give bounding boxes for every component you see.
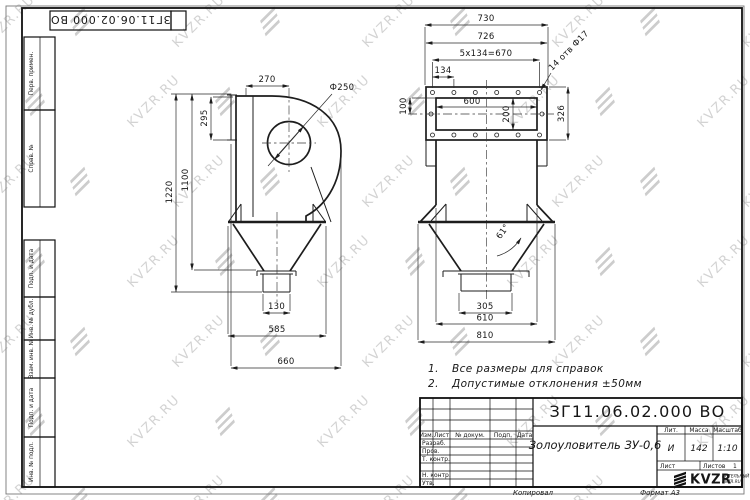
mass-header: Масса xyxy=(689,427,708,434)
row-razrab: Разраб. xyxy=(422,440,446,447)
dim-200: 200 xyxy=(502,105,512,122)
dim-holes-note: 14 отв Ф17 xyxy=(547,29,591,73)
side-strip: Перв. примен. Справ. № Подп. и дата Инв.… xyxy=(24,37,55,487)
kvzr-logo: KVZR КОТЕЛЬНЫЙ ЗАВОД KVZR.RU xyxy=(674,472,750,489)
left-view-cyclone-side: 270 Ф250 295 1100 1220 130 585 660 xyxy=(165,75,354,368)
dim-730: 730 xyxy=(477,14,494,24)
corner-doc-number: ЗГ11.06.02.000 ВО xyxy=(50,13,171,26)
strip-label: Справ. № xyxy=(29,144,35,172)
strip-label: Подп. и дата xyxy=(29,248,35,288)
lit-header: Лит. xyxy=(664,427,678,434)
dim-270: 270 xyxy=(258,75,275,85)
col-list: Лист xyxy=(434,432,450,439)
row-prov: Пров. xyxy=(422,448,440,455)
strip-label: Перв. примен. xyxy=(29,52,35,96)
title-block: Изм. Лист № докум. Подп. Дата Разраб. Пр… xyxy=(419,398,750,497)
dim-600: 600 xyxy=(463,97,480,107)
row-nkontr: Н. контр. xyxy=(422,472,451,479)
dim-610: 610 xyxy=(476,314,493,324)
footer-format: Формат А3 xyxy=(640,489,680,497)
dim-326: 326 xyxy=(557,105,567,122)
kvzr-logo-icon xyxy=(674,472,686,489)
dim-305: 305 xyxy=(476,302,493,312)
note-text: Допустимые отклонения ±50мм xyxy=(451,378,642,390)
dim-810: 810 xyxy=(476,331,493,341)
dim-1220: 1220 xyxy=(165,181,175,204)
dim-726: 726 xyxy=(477,32,494,42)
dim-295: 295 xyxy=(200,109,210,126)
right-view-cyclone-front: 730 726 5x134=670 134 14 отв Ф17 100 600… xyxy=(399,14,591,342)
scale-header: Масштаб xyxy=(713,427,742,434)
note-number: 2. xyxy=(428,378,439,390)
note-number: 1. xyxy=(428,363,439,375)
logo-tagline: КОТЕЛЬНЫЙ ЗАВОД xyxy=(722,474,750,479)
drawing-sheet: KVZR.RUKVZR.RUKVZR.RUKVZR.RUKVZR.RUKVZR.… xyxy=(0,0,750,500)
dim-130: 130 xyxy=(268,302,285,312)
sheets-label: Листов xyxy=(703,463,726,470)
note-text: Все размеры для справок xyxy=(452,363,604,375)
col-doc: № докум. xyxy=(455,432,485,439)
product-name: Золоуловитель ЗУ-0,6 xyxy=(529,438,662,452)
sheets-value: 1 xyxy=(733,463,737,470)
dim-100: 100 xyxy=(399,97,409,114)
row-tkontr: Т. контр. xyxy=(421,456,450,463)
corner-stamp: ЗГ11.06.02.000 ВО xyxy=(50,11,186,30)
dim-f250: Ф250 xyxy=(330,83,355,93)
mass-value: 142 xyxy=(690,444,707,454)
dim-1100: 1100 xyxy=(181,169,191,192)
sheet-label: Лист xyxy=(660,463,676,470)
row-utv: Утв. xyxy=(422,480,435,487)
col-izm: Изм. xyxy=(419,432,433,439)
scale-value: 1:10 xyxy=(717,444,737,454)
strip-label: Взам. инв. № xyxy=(29,339,35,378)
dim-660: 660 xyxy=(277,357,294,367)
title-doc-number: ЗГ11.06.02.000 ВО xyxy=(550,402,726,421)
strip-label: Инв. № дубл. xyxy=(29,299,35,339)
dim-angle: 61° xyxy=(495,222,512,241)
footer-kopiroval: Копировал xyxy=(513,489,554,497)
lit-value: И xyxy=(668,444,675,454)
strip-label: Подп. и дата xyxy=(29,387,35,427)
dim-134: 134 xyxy=(434,66,451,76)
dim-670: 5x134=670 xyxy=(460,49,513,59)
notes: 1. Все размеры для справок 2. Допустимые… xyxy=(428,363,642,390)
logo-tagline: KVZR.RU xyxy=(722,479,741,484)
col-podp: Подп. xyxy=(494,432,512,439)
dim-585: 585 xyxy=(268,325,285,335)
strip-label: Инв. № подл. xyxy=(29,442,35,482)
technical-drawing: ЗГ11.06.02.000 ВО Перв. примен. Справ. №… xyxy=(0,0,750,500)
